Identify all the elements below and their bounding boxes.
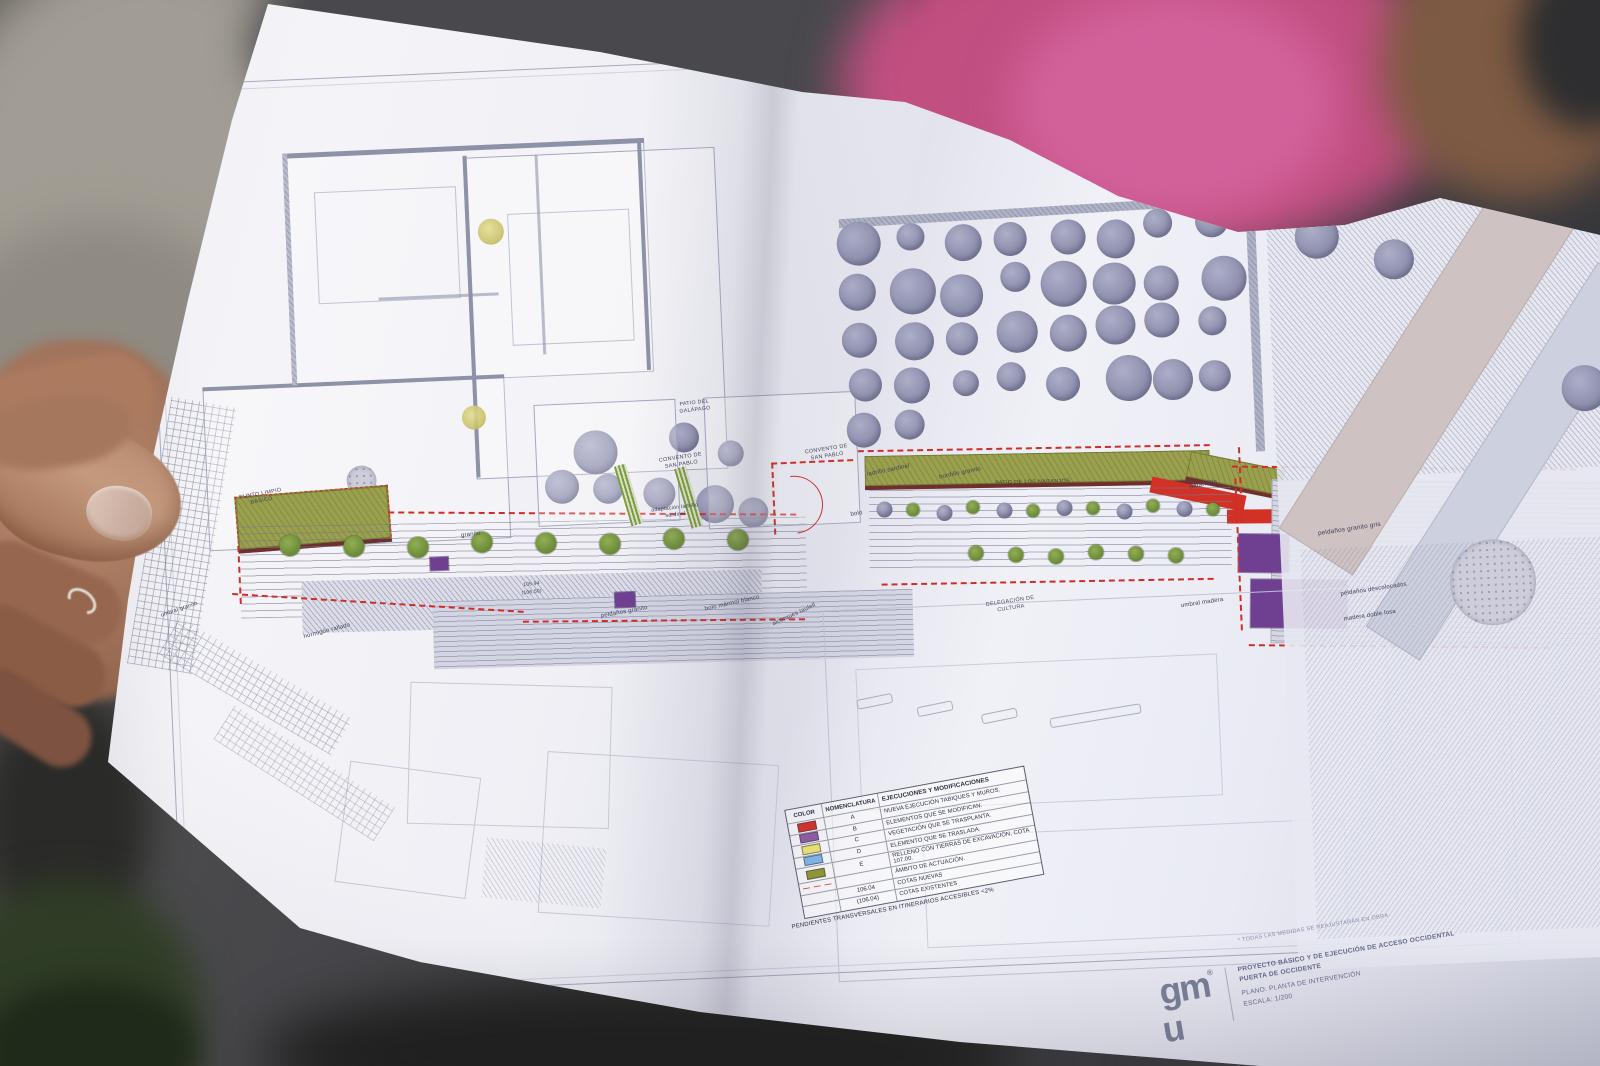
tree: [279, 535, 300, 556]
naranjo-tree: [1040, 260, 1088, 308]
tree: [936, 505, 952, 521]
naranjo-tree: [993, 222, 1028, 257]
naranjo-tree: [952, 370, 979, 397]
naranjo-tree: [945, 322, 979, 356]
naranjo-tree: [1049, 313, 1088, 352]
naranjo-tree: [1095, 304, 1136, 345]
tree: [1048, 549, 1063, 564]
tree: [1088, 545, 1103, 560]
naranjo-tree: [996, 361, 1026, 391]
gmu-logo: gm®u: [1157, 970, 1221, 1032]
photo-scene: PATIO DEL GALÁPAGO CONVENTO DE SAN PABLO…: [0, 0, 1600, 1066]
tree: [966, 501, 979, 514]
naranjo-tree: [939, 273, 983, 317]
tree: [1008, 547, 1023, 562]
tree: [1056, 500, 1072, 516]
naranjo-tree: [1096, 219, 1136, 259]
tree: [599, 533, 620, 554]
tree: [1128, 546, 1143, 561]
naranjo-tree: [895, 321, 936, 362]
gmu-logo-gm: gm: [1156, 964, 1212, 1013]
gmu-logo-u: u: [1161, 1014, 1185, 1044]
tree-row-central: [876, 498, 1248, 521]
tree: [343, 536, 364, 557]
naranjo-tree: [996, 310, 1039, 353]
gmu-logo-mark: ®: [1206, 968, 1213, 978]
naranjo-tree: [944, 223, 983, 262]
purple-element: [430, 557, 449, 571]
naranjo-tree: [1197, 306, 1227, 336]
naranjo-tree: [1201, 255, 1247, 301]
tree: [996, 502, 1012, 518]
naranjo-tree: [1152, 358, 1194, 400]
naranjo-tree: [894, 409, 925, 440]
building-room-d: [314, 186, 461, 304]
tree: [1176, 501, 1192, 517]
tree: [1146, 499, 1159, 512]
tree: [1116, 503, 1132, 519]
tree: [1206, 503, 1219, 516]
tree: [535, 532, 556, 553]
ruin-hatch: [481, 837, 606, 908]
naranjo-tree: [1144, 302, 1180, 338]
tree: [407, 537, 428, 558]
naranjo-tree: [1045, 366, 1081, 402]
building-room-e: [507, 209, 635, 346]
tree: [906, 503, 919, 516]
tree: [1026, 504, 1039, 517]
naranjo-tree: [1143, 208, 1174, 239]
naranjo-tree: [1198, 359, 1231, 392]
naranjo-tree: [1105, 354, 1153, 402]
naranjo-tree: [889, 268, 936, 315]
tree: [1168, 548, 1183, 563]
tree-row-lower: [968, 544, 1220, 564]
tree: [1086, 502, 1099, 515]
title-block-divider: [1224, 968, 1234, 1021]
naranjo-tree: [893, 366, 930, 403]
naranjo-tree: [1000, 261, 1031, 292]
naranjo-tree: [896, 223, 924, 251]
naranjo-tree: [1050, 219, 1087, 256]
tree: [968, 546, 983, 561]
naranjo-tree: [1092, 262, 1136, 306]
naranjo-tree: [1143, 264, 1179, 300]
